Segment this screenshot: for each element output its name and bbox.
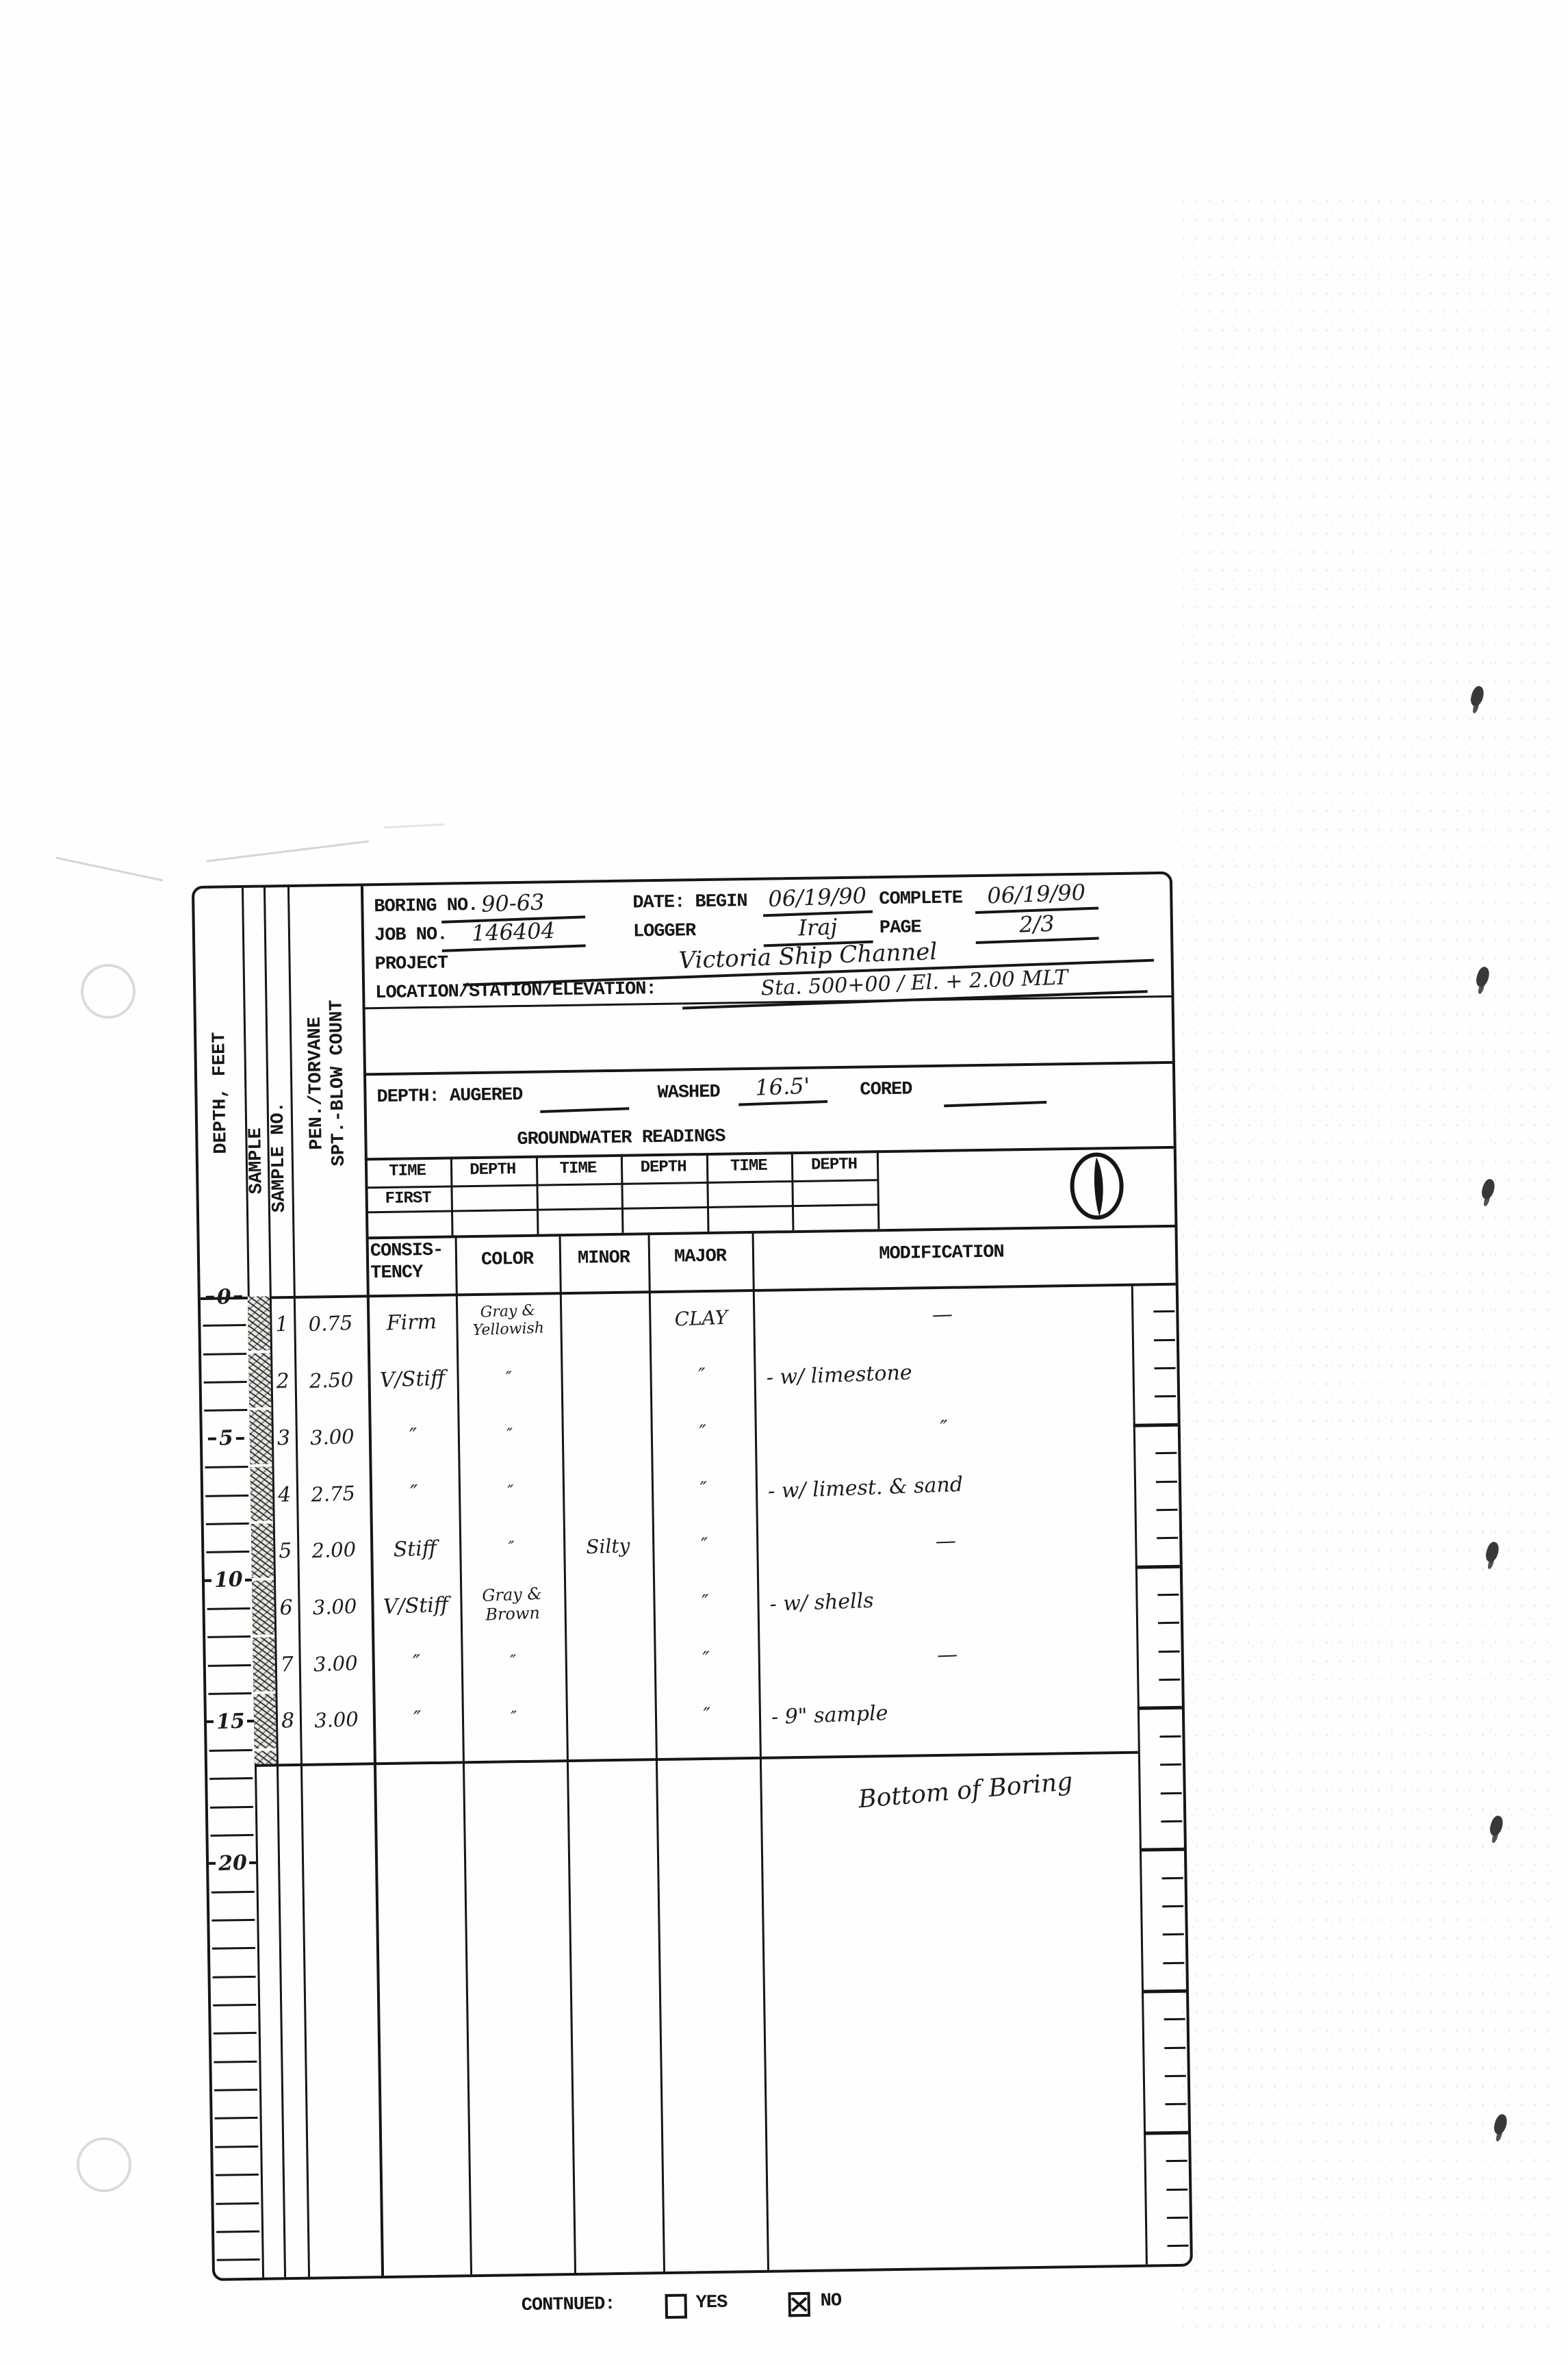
row-7-color: ″ bbox=[461, 1644, 565, 1677]
depth-scale-number: 10 bbox=[214, 1568, 243, 1592]
logger-label: LOGGER bbox=[633, 919, 696, 943]
row-5-color: ″ bbox=[459, 1531, 564, 1564]
sample-no-column-label: SAMPLE NO. bbox=[266, 1013, 292, 1301]
tick-dash bbox=[249, 1861, 256, 1864]
row-2-color: ″ bbox=[457, 1361, 561, 1395]
tick-dash bbox=[236, 1437, 244, 1440]
row-8-sample-no: 8 bbox=[275, 1705, 300, 1736]
bottom-of-boring-line bbox=[255, 1751, 1138, 1767]
right-scale-tick bbox=[1156, 1480, 1177, 1482]
project-label: PROJECT bbox=[374, 952, 448, 977]
tick-dash bbox=[247, 1720, 254, 1722]
row-3-major: ″ bbox=[650, 1414, 755, 1448]
right-scale-tick bbox=[1164, 2046, 1185, 2048]
continued-no-label: NO bbox=[820, 2289, 841, 2313]
continued-no-checkbox bbox=[788, 2292, 810, 2317]
grid-line bbox=[877, 1150, 880, 1229]
row-6-sample-no: 6 bbox=[274, 1592, 299, 1623]
row-1-sample-no: 1 bbox=[270, 1309, 295, 1340]
tick-dash bbox=[208, 1437, 216, 1440]
depth-tick bbox=[203, 1324, 246, 1327]
depth-tick bbox=[214, 2061, 257, 2063]
right-scale-tick bbox=[1161, 1792, 1182, 1794]
depth-tick bbox=[216, 2202, 259, 2204]
row-1-color: Gray & Yellowish bbox=[455, 1299, 561, 1343]
groundwater-title: GROUNDWATER READINGS bbox=[433, 1124, 809, 1153]
depth-augered-label: DEPTH: AUGERED bbox=[376, 1084, 522, 1109]
depth-tick bbox=[216, 2230, 259, 2233]
scanned-boring-log-page: BORING NO. 90-63 DATE: BEGIN 06/19/90 CO… bbox=[0, 0, 1568, 2366]
row-3-modification: ″ bbox=[754, 1405, 1133, 1451]
groundwater-first-label: FIRST bbox=[365, 1188, 451, 1210]
depth-tick bbox=[215, 2146, 258, 2148]
row-2-consistency: V/Stiff bbox=[368, 1362, 457, 1396]
row-3-pen-torvane: 3.00 bbox=[295, 1421, 370, 1453]
right-scale-major-tick bbox=[1133, 1423, 1178, 1427]
depth-augered-value bbox=[539, 1078, 630, 1113]
boring-log-form: BORING NO. 90-63 DATE: BEGIN 06/19/90 CO… bbox=[192, 872, 1193, 2281]
depth-washed-value: 16.5' bbox=[738, 1071, 828, 1106]
right-scale-tick bbox=[1159, 1650, 1180, 1652]
row-4-major: ″ bbox=[651, 1471, 756, 1505]
row-6-modification: - w/ shells bbox=[757, 1575, 1136, 1620]
tick-dash bbox=[206, 1296, 214, 1299]
right-scale-tick bbox=[1153, 1310, 1174, 1312]
color-header: COLOR bbox=[455, 1247, 559, 1272]
right-scale-major-tick bbox=[1144, 2130, 1188, 2135]
right-scale-tick bbox=[1166, 2188, 1187, 2190]
row-6-consistency: V/Stiff bbox=[371, 1589, 461, 1623]
grid-line bbox=[366, 1225, 1175, 1240]
modification-header: MODIFICATION bbox=[752, 1239, 1131, 1268]
row-5-sample-no: 5 bbox=[273, 1536, 298, 1566]
row-2-pen-torvane: 2.50 bbox=[294, 1364, 369, 1397]
right-scale-tick bbox=[1159, 1679, 1180, 1681]
row-7-consistency: ″ bbox=[372, 1646, 461, 1679]
depth-scale-label: 20 bbox=[209, 1849, 257, 1877]
depth-tick bbox=[209, 1777, 253, 1780]
row-7-major: ″ bbox=[654, 1641, 758, 1675]
right-scale-tick bbox=[1163, 1961, 1184, 1963]
depth-tick bbox=[210, 1834, 253, 1837]
pen-torvane-spt-column-label: PEN./TORVANE SPT.-BLOW COUNT bbox=[303, 926, 352, 1241]
depth-tick bbox=[207, 1636, 250, 1638]
groundwater-header-cell: DEPTH bbox=[791, 1154, 876, 1176]
tick-dash bbox=[207, 1720, 214, 1723]
depth-tick bbox=[211, 1919, 255, 1922]
continued-yes-checkbox bbox=[665, 2294, 688, 2319]
row-8-pen-torvane: 3.00 bbox=[299, 1704, 374, 1737]
job-no-label: JOB NO. bbox=[374, 924, 448, 948]
depth-tick bbox=[209, 1749, 253, 1752]
depth-cored-value bbox=[943, 1072, 1047, 1107]
row-6-color: Gray & Brown bbox=[460, 1588, 565, 1621]
depth-tick bbox=[204, 1381, 247, 1384]
depth-tick bbox=[214, 2032, 257, 2035]
right-scale-major-tick bbox=[1142, 1989, 1186, 1994]
clock-pie-icon bbox=[1068, 1150, 1127, 1223]
right-scale-tick bbox=[1157, 1537, 1178, 1539]
depth-tick bbox=[208, 1692, 251, 1695]
right-scale-tick bbox=[1164, 2018, 1185, 2020]
consistency-header: CONSIS- TENCY bbox=[370, 1239, 453, 1284]
row-1-major: CLAY bbox=[649, 1301, 754, 1335]
row-7-sample-no: 7 bbox=[274, 1649, 300, 1679]
tick-dash bbox=[245, 1578, 252, 1581]
right-scale-major-tick bbox=[1140, 1848, 1184, 1852]
depth-tick bbox=[207, 1607, 250, 1610]
bottom-of-boring-note: Bottom of Boring bbox=[858, 1761, 1146, 1814]
right-scale-tick bbox=[1157, 1509, 1178, 1511]
right-scale-tick bbox=[1165, 2075, 1186, 2077]
right-scale-tick bbox=[1155, 1452, 1177, 1454]
right-scale-tick bbox=[1163, 1933, 1184, 1935]
right-scale-tick bbox=[1168, 2245, 1189, 2247]
row-5-consistency: Stiff bbox=[370, 1532, 460, 1566]
page-label: PAGE bbox=[879, 916, 921, 940]
groundwater-header-cell: DEPTH bbox=[450, 1160, 535, 1182]
row-5-minor: Silty bbox=[563, 1529, 653, 1563]
right-scale-tick bbox=[1167, 2217, 1188, 2219]
groundwater-header-cell: TIME bbox=[706, 1156, 791, 1178]
depth-tick bbox=[213, 1975, 256, 1978]
right-scale-tick bbox=[1159, 1735, 1181, 1738]
continued-yes-label: YES bbox=[695, 2291, 727, 2315]
right-scale-tick bbox=[1162, 1877, 1183, 1879]
depth-scale-number: 5 bbox=[218, 1426, 233, 1451]
row-5-pen-torvane: 2.00 bbox=[297, 1534, 372, 1566]
depth-tick bbox=[215, 2117, 258, 2120]
major-header: MAJOR bbox=[648, 1245, 752, 1269]
depth-tick bbox=[206, 1551, 249, 1553]
groundwater-header-cell: DEPTH bbox=[621, 1157, 706, 1179]
row-4-modification: - w/ limest. & sand bbox=[755, 1462, 1134, 1507]
depth-tick bbox=[210, 1805, 253, 1808]
row-8-color: ″ bbox=[461, 1701, 566, 1734]
depth-tick bbox=[213, 2004, 256, 2007]
row-1-consistency: Firm bbox=[367, 1306, 457, 1339]
depth-tick bbox=[208, 1664, 251, 1667]
depth-scale-number: 20 bbox=[218, 1850, 247, 1875]
right-scale-tick bbox=[1160, 1764, 1181, 1766]
right-scale-tick bbox=[1157, 1594, 1179, 1596]
right-scale-major-tick bbox=[1135, 1564, 1180, 1568]
depth-washed-label: WASHED bbox=[657, 1081, 720, 1105]
row-8-consistency: ″ bbox=[372, 1702, 462, 1735]
row-3-color: ″ bbox=[457, 1417, 562, 1451]
depth-tick bbox=[214, 2089, 257, 2091]
row-4-pen-torvane: 2.75 bbox=[296, 1477, 370, 1510]
row-2-modification: - w/ limestone bbox=[754, 1349, 1133, 1394]
job-no-value: 146404 bbox=[441, 915, 586, 952]
continued-label: CONTNUED: bbox=[521, 2293, 615, 2317]
depth-tick bbox=[205, 1494, 248, 1497]
depth-scale-number: 0 bbox=[216, 1285, 231, 1310]
right-scale-tick bbox=[1154, 1339, 1175, 1341]
minor-header: MINOR bbox=[559, 1246, 648, 1271]
sample-column-label: SAMPLE bbox=[244, 1017, 270, 1304]
right-scale-major-tick bbox=[1138, 1706, 1182, 1710]
row-4-sample-no: 4 bbox=[272, 1479, 297, 1510]
row-1-pen-torvane: 0.75 bbox=[294, 1308, 368, 1340]
row-2-major: ″ bbox=[650, 1358, 754, 1391]
depth-tick bbox=[203, 1353, 246, 1356]
depth-tick bbox=[206, 1523, 249, 1525]
depth-cored-label: CORED bbox=[860, 1078, 912, 1102]
right-scale-tick bbox=[1158, 1622, 1179, 1624]
row-7-pen-torvane: 3.00 bbox=[298, 1647, 373, 1680]
groundwater-header-cell: TIME bbox=[535, 1158, 620, 1180]
depth-tick bbox=[204, 1409, 247, 1412]
depth-feet-column-label: DEPTH, FEET bbox=[207, 949, 233, 1236]
depth-tick bbox=[212, 1947, 255, 1950]
date-begin-label: DATE: BEGIN bbox=[632, 890, 747, 915]
row-7-modification: — bbox=[758, 1632, 1137, 1677]
row-4-consistency: ″ bbox=[369, 1476, 459, 1510]
right-scale-tick bbox=[1165, 2103, 1186, 2105]
row-2-sample-no: 2 bbox=[270, 1366, 296, 1397]
depth-tick bbox=[216, 2174, 259, 2176]
scan-tilt-wrapper: BORING NO. 90-63 DATE: BEGIN 06/19/90 CO… bbox=[0, 0, 1568, 2366]
row-8-major: ″ bbox=[654, 1698, 759, 1731]
tick-dash bbox=[234, 1295, 242, 1298]
row-5-major: ″ bbox=[652, 1528, 757, 1562]
row-4-color: ″ bbox=[458, 1474, 563, 1508]
groundwater-header-cell: TIME bbox=[365, 1161, 450, 1183]
spt-blow-count-label: SPT.-BLOW COUNT bbox=[325, 926, 352, 1241]
right-scale-tick bbox=[1166, 2160, 1187, 2162]
location-label: LOCATION/STATION/ELEVATION: bbox=[375, 978, 656, 1005]
depth-scale-number: 15 bbox=[216, 1709, 245, 1734]
row-3-sample-no: 3 bbox=[271, 1422, 296, 1453]
right-scale-tick bbox=[1155, 1367, 1176, 1369]
depth-tick bbox=[211, 1890, 255, 1893]
row-5-modification: — bbox=[756, 1518, 1135, 1564]
row-3-consistency: ″ bbox=[368, 1419, 458, 1453]
row-6-major: ″ bbox=[653, 1584, 758, 1618]
depth-scale-label: 10 bbox=[205, 1566, 253, 1594]
tick-dash bbox=[209, 1862, 216, 1865]
row-6-pen-torvane: 3.00 bbox=[298, 1590, 372, 1623]
depth-tick bbox=[217, 2259, 260, 2261]
right-scale-tick bbox=[1161, 1820, 1182, 1822]
right-scale-tick bbox=[1162, 1905, 1183, 1907]
depth-scale-label: 15 bbox=[207, 1707, 255, 1735]
depth-tick bbox=[205, 1466, 248, 1468]
date-complete-label: COMPLETE bbox=[879, 887, 962, 911]
depth-scale-label: 5 bbox=[203, 1425, 250, 1453]
right-scale-tick bbox=[1155, 1395, 1176, 1397]
depth-scale-label: 0 bbox=[201, 1283, 248, 1311]
tick-dash bbox=[205, 1579, 211, 1581]
row-1-modification: — bbox=[753, 1292, 1132, 1337]
row-8-modification: - 9" sample bbox=[758, 1688, 1138, 1733]
